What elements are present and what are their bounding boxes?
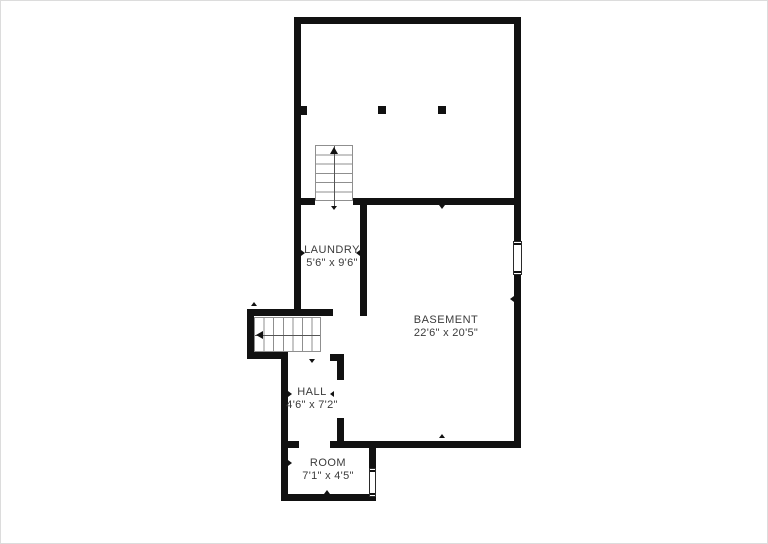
room-name: LAUNDRY [267,244,397,257]
room-dimensions: 5'6" x 9'6" [267,257,397,270]
room-label-room: ROOM 7'1" x 4'5" [263,457,393,483]
wall-room-bottom [281,494,376,501]
wall-right [514,17,521,448]
room-name: ROOM [263,457,393,470]
wall-hall-right-upper [337,354,344,380]
wall-basement-bottom [330,441,521,448]
tick-mark [439,205,445,209]
stair-centerline [255,335,320,336]
wall-left [294,17,301,316]
wall-stub [301,106,307,115]
tick-mark [510,296,514,302]
basement-window [513,241,522,275]
support-post [378,106,386,114]
wall-top-room-top [294,17,521,24]
floor-plan-canvas: LAUNDRY 5'6" x 9'6" BASEMENT 22'6" x 20'… [0,0,768,544]
room-name: HALL [247,386,377,399]
tick-mark [324,490,330,494]
stair-direction-arrow-icon [330,147,338,154]
room-label-hall: HALL 4'6" x 7'2" [247,386,377,412]
room-label-laundry: LAUNDRY 5'6" x 9'6" [267,244,397,270]
staircase-upper [315,145,353,201]
room-dimensions: 7'1" x 4'5" [263,470,393,483]
tick-mark [251,302,257,306]
support-post [438,106,446,114]
room-name: BASEMENT [381,314,511,327]
stair-direction-arrow-icon [256,331,263,339]
wall-hall-room-divider [281,441,299,448]
tick-mark [309,359,315,363]
staircase-lower [254,317,321,352]
tick-mark [331,206,337,210]
wall-divider-right [353,198,521,205]
wall-bumpout-top [247,309,333,316]
room-label-basement: BASEMENT 22'6" x 20'5" [381,314,511,340]
tick-mark [439,434,445,438]
room-dimensions: 22'6" x 20'5" [381,327,511,340]
room-dimensions: 4'6" x 7'2" [247,399,377,412]
stair-centerline [334,146,335,206]
wall-divider-left [294,198,315,205]
